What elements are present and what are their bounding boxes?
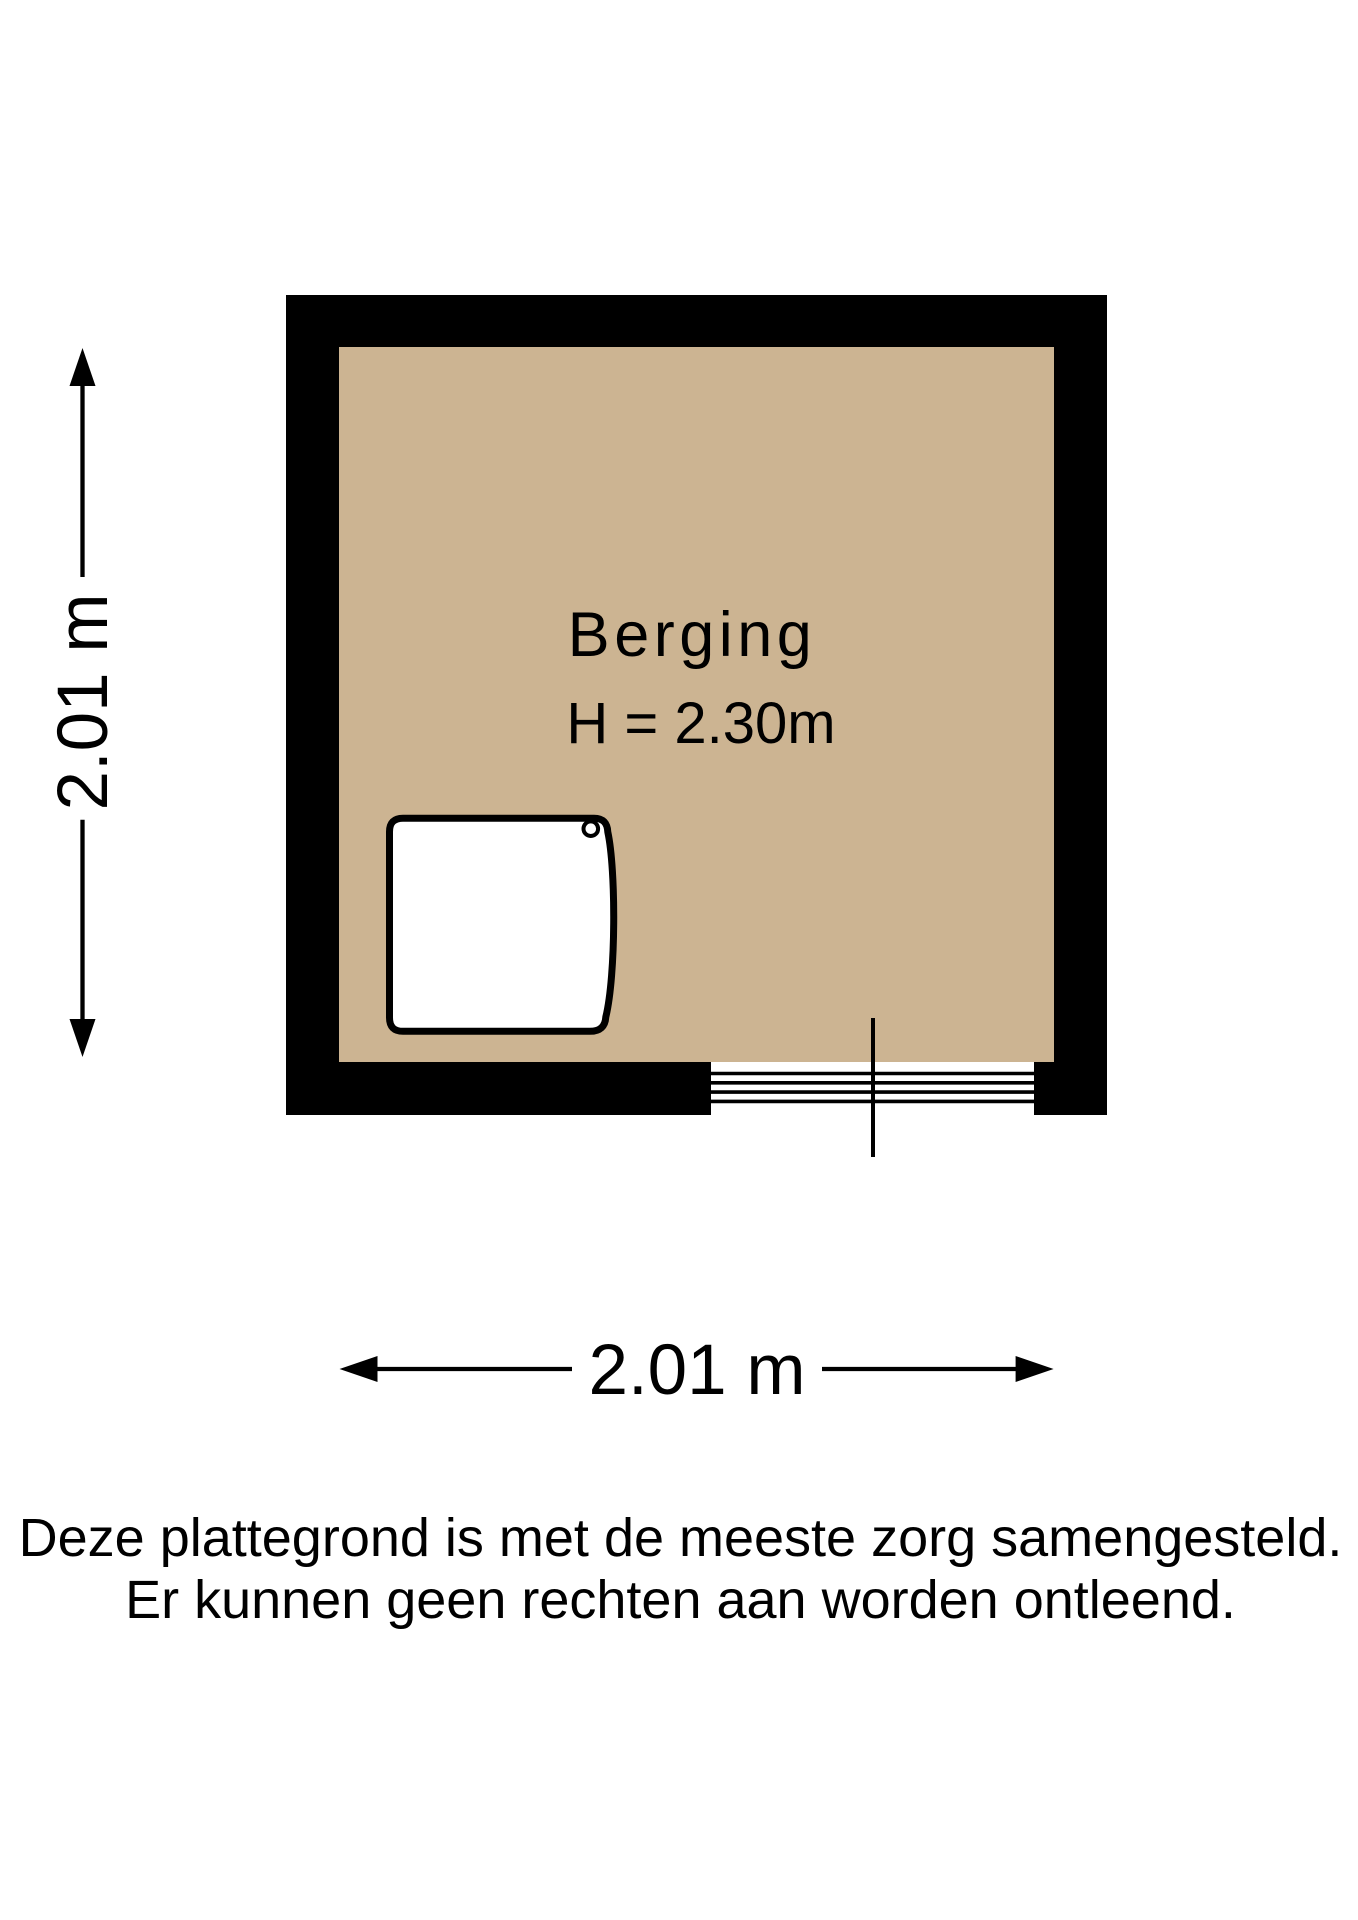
- svg-text:Berging: Berging: [568, 600, 817, 670]
- svg-text:Er kunnen geen rechten aan wor: Er kunnen geen rechten aan worden ontlee…: [125, 1570, 1236, 1630]
- svg-text:2.01 m: 2.01 m: [588, 1331, 805, 1410]
- svg-text:H = 2.30m: H = 2.30m: [566, 691, 835, 756]
- svg-text:Deze plattegrond is met de mee: Deze plattegrond is met de meeste zorg s…: [19, 1508, 1343, 1568]
- svg-text:2.01 m: 2.01 m: [44, 593, 123, 810]
